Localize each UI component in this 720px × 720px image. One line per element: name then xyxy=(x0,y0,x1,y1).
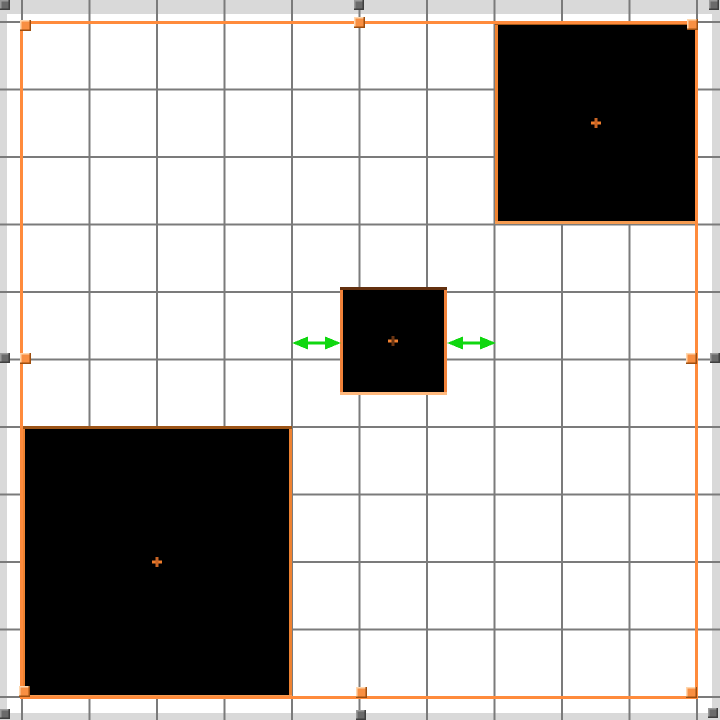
arrow-shaft xyxy=(305,342,328,345)
square-border-bottom xyxy=(495,221,698,224)
selection-handle-top-middle-bevel-light xyxy=(354,17,356,28)
selection-handle-bottom-middle-bevel-light xyxy=(356,687,367,689)
arrow-head-left xyxy=(292,337,308,350)
selection-handle-bottom-left-bevel-light xyxy=(19,686,21,697)
selection-handle-middle-right-bevel-light xyxy=(686,353,688,364)
frame-handle-bottom-middle-bevel-dark xyxy=(365,710,367,720)
selection-handle-middle-left[interactable] xyxy=(20,353,31,364)
selection-handle-top-middle-bevel-dark xyxy=(354,27,365,29)
selection-handle-top-middle-bevel-light xyxy=(354,17,365,19)
selection-handle-top-middle[interactable] xyxy=(354,17,365,28)
selection-handle-bottom-right-bevel-light xyxy=(686,687,688,698)
selection-handle-middle-right-bevel-light xyxy=(686,353,697,355)
square-border-right xyxy=(444,287,447,395)
frame-handle-bottom-left-bevel-dark xyxy=(9,709,11,719)
square-border-top xyxy=(340,287,447,290)
selection-handle-top-left-bevel-dark xyxy=(30,20,32,31)
selection-handle-middle-right-bevel-dark xyxy=(686,363,697,365)
selection-handle-top-left-bevel-light xyxy=(20,20,31,22)
arrow-head-left xyxy=(447,337,463,350)
center-cross-top-right[interactable] xyxy=(595,118,598,128)
selection-handle-top-right-bevel-light xyxy=(687,19,689,30)
selection-handle-top-left[interactable] xyxy=(20,20,31,31)
editor-scene xyxy=(0,0,720,720)
square-border-bottom xyxy=(340,392,447,395)
selection-handle-middle-left-bevel-dark xyxy=(30,353,32,364)
frame-handle-top-right-bevel-dark xyxy=(718,0,720,10)
selection-handle-bottom-left[interactable] xyxy=(19,686,30,697)
frame-handle-middle-left-bevel-dark xyxy=(9,353,11,363)
selection-handle-top-left-bevel-dark xyxy=(20,30,31,32)
selection-handle-bottom-right-bevel-dark xyxy=(696,687,698,698)
selection-handle-top-right[interactable] xyxy=(687,19,698,30)
selection-handle-bottom-left-bevel-dark xyxy=(29,686,31,697)
center-cross-middle[interactable] xyxy=(392,336,395,346)
black-square-bottom-left[interactable] xyxy=(22,426,292,698)
selection-handle-bottom-right-bevel-light xyxy=(686,687,697,689)
square-border-left xyxy=(495,22,498,224)
selection-handle-bottom-middle-bevel-dark xyxy=(356,697,367,699)
selection-handle-bottom-middle-bevel-dark xyxy=(366,687,368,698)
frame-handle-top-middle-bevel-dark xyxy=(363,0,365,10)
arrow-head-right xyxy=(325,337,341,350)
black-square-middle[interactable] xyxy=(340,287,447,395)
square-border-top xyxy=(22,426,292,429)
canvas-viewport[interactable] xyxy=(0,0,720,720)
selection-handle-middle-left-bevel-light xyxy=(20,353,22,364)
selection-handle-bottom-left-bevel-dark xyxy=(19,696,30,698)
selection-handle-middle-right[interactable] xyxy=(686,353,697,364)
selection-handle-bottom-right-bevel-dark xyxy=(686,697,697,699)
selection-handle-bottom-left-bevel-light xyxy=(19,686,30,688)
selection-handle-middle-left-bevel-light xyxy=(20,353,31,355)
selection-handle-middle-left-bevel-dark xyxy=(20,363,31,365)
frame-handle-top-left-bevel-dark xyxy=(9,0,11,10)
arrow-shaft xyxy=(460,342,483,345)
selection-handle-top-left-bevel-light xyxy=(20,20,22,31)
selection-handle-middle-right-bevel-dark xyxy=(696,353,698,364)
black-square-top-right[interactable] xyxy=(495,22,698,224)
selection-handle-bottom-right[interactable] xyxy=(686,687,697,698)
selection-handle-top-right-bevel-light xyxy=(687,19,698,21)
selection-handle-bottom-middle-bevel-light xyxy=(356,687,358,698)
selection-handle-top-right-bevel-dark xyxy=(697,19,699,30)
center-cross-bottom-left[interactable] xyxy=(156,557,159,567)
horizontal-arrow-right[interactable] xyxy=(447,337,496,350)
horizontal-arrow-left[interactable] xyxy=(292,337,341,350)
frame-handle-bottom-right-bevel-dark xyxy=(717,708,719,718)
square-border-right xyxy=(289,426,292,698)
selection-handle-top-middle-bevel-dark xyxy=(364,17,366,28)
selection-handle-bottom-middle[interactable] xyxy=(356,687,367,698)
selection-handle-top-right-bevel-dark xyxy=(687,29,698,31)
square-border-left xyxy=(340,287,343,395)
